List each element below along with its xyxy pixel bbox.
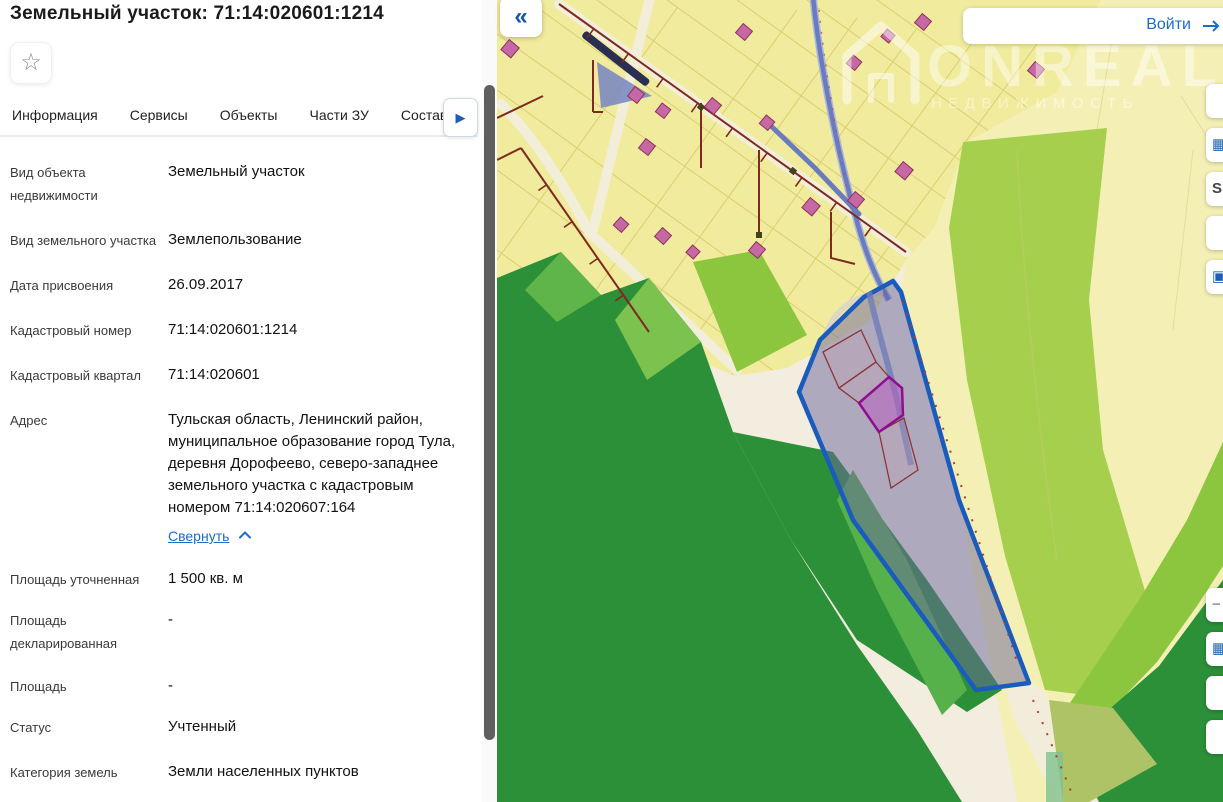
field-label: Статус (10, 716, 168, 739)
map-control-3[interactable]: S (1206, 172, 1223, 206)
field-value: - (168, 675, 478, 698)
watermark-subtitle: НЕДВИЖИМОСТЬ (931, 95, 1139, 112)
field-row: Кадастровый квартал71:14:020601 (10, 364, 478, 387)
field-label: Адрес (10, 409, 168, 548)
field-value: Учтенный (168, 716, 478, 739)
field-row: Дата присвоения26.09.2017 (10, 274, 478, 297)
field-value: 71:14:020601 (168, 364, 478, 387)
field-row: Площадь уточненная1 500 кв. м (10, 568, 478, 591)
field-value: Земли населенных пунктов (168, 761, 478, 784)
tabs-scroll-right-button[interactable]: ▶ (443, 98, 478, 137)
field-value: Землепользование (168, 229, 478, 252)
map-control-7[interactable] (1206, 676, 1223, 710)
map-control-icon: ▦ (1212, 640, 1223, 657)
field-row: СтатусУчтенный (10, 716, 478, 739)
chevron-up-icon (239, 531, 251, 539)
field-label: Категория земель (10, 761, 168, 784)
field-value: 71:14:020601:1214 (168, 319, 478, 342)
field-row: Вид объекта недвижимостиЗемельный участо… (10, 161, 478, 207)
field-label: Кадастровый квартал (10, 364, 168, 387)
favorite-button[interactable]: ☆ (10, 42, 52, 84)
map-control-4[interactable] (1206, 216, 1223, 250)
map-canvas[interactable]: ONREAL НЕДВИЖИМОСТЬ (497, 0, 1223, 802)
field-list: Вид объекта недвижимостиЗемельный участо… (10, 161, 478, 802)
star-icon: ☆ (20, 49, 42, 76)
map-control-icon: ▣ (1212, 268, 1223, 285)
info-panel: Земельный участок: 71:14:020601:1214 ☆ И… (0, 0, 497, 802)
collapse-address-label: Свернуть (168, 528, 229, 544)
field-label: Вид земельного участка (10, 229, 168, 252)
login-button[interactable]: Войти (963, 8, 1223, 44)
map-control-6[interactable]: ▦ (1206, 632, 1223, 666)
field-label: Площадь уточненная (10, 568, 168, 591)
app-window: ONREAL НЕДВИЖИМОСТЬ « Войти ▦ S ▣ − ▦ Зе… (0, 0, 1223, 802)
map-control-5[interactable]: ▣ (1206, 260, 1223, 294)
field-row: Категория земельЗемли населенных пунктов (10, 761, 478, 784)
collapse-address-link[interactable]: Свернуть (168, 525, 251, 547)
tab-parts[interactable]: Части ЗУ (309, 100, 368, 135)
panel-scrollbar-thumb[interactable] (484, 85, 495, 740)
tab-composition[interactable]: Состав (401, 100, 447, 135)
field-row: Площадь декларированная- (10, 609, 478, 655)
chevrons-left-icon: « (514, 3, 527, 30)
field-label: Дата присвоения (10, 274, 168, 297)
map-control-2[interactable]: ▦ (1206, 128, 1223, 162)
field-label: Площадь декларированная (10, 609, 168, 655)
field-row: Кадастровый номер71:14:020601:1214 (10, 319, 478, 342)
tab-services[interactable]: Сервисы (130, 100, 188, 135)
field-row: Вид земельного участкаЗемлепользование (10, 229, 478, 252)
field-value: Тульская область, Ленинский район, муниц… (168, 409, 478, 548)
field-value: 26.09.2017 (168, 274, 478, 297)
field-value: - (168, 609, 478, 655)
map-control-1[interactable] (1206, 84, 1223, 118)
field-value: Земельный участок (168, 161, 478, 207)
map-control-zoom-out[interactable]: − (1206, 588, 1223, 622)
map-control-8[interactable] (1206, 720, 1223, 754)
chevron-right-icon: ▶ (456, 110, 466, 125)
map-control-icon: S (1212, 180, 1222, 197)
page-title: Земельный участок: 71:14:020601:1214 (10, 3, 497, 25)
field-row: Площадь- (10, 675, 478, 698)
tab-bar: Информация Сервисы Объекты Части ЗУ Сост… (0, 100, 478, 137)
tab-information[interactable]: Информация (12, 100, 98, 135)
field-label: Площадь (10, 675, 168, 698)
collapse-panel-button[interactable]: « (500, 0, 542, 37)
login-label: Войти (1146, 16, 1191, 34)
field-label: Вид объекта недвижимости (10, 161, 168, 207)
field-row-address: Адрес Тульская область, Ленинский район,… (10, 409, 478, 548)
arrow-right-icon (1203, 20, 1221, 32)
tab-objects[interactable]: Объекты (220, 100, 278, 135)
field-value: 1 500 кв. м (168, 568, 478, 591)
address-text: Тульская область, Ленинский район, муниц… (168, 411, 455, 516)
field-label: Кадастровый номер (10, 319, 168, 342)
layers-icon: ▦ (1212, 136, 1223, 153)
minus-icon: − (1212, 596, 1221, 613)
teal-strip (1046, 752, 1063, 802)
